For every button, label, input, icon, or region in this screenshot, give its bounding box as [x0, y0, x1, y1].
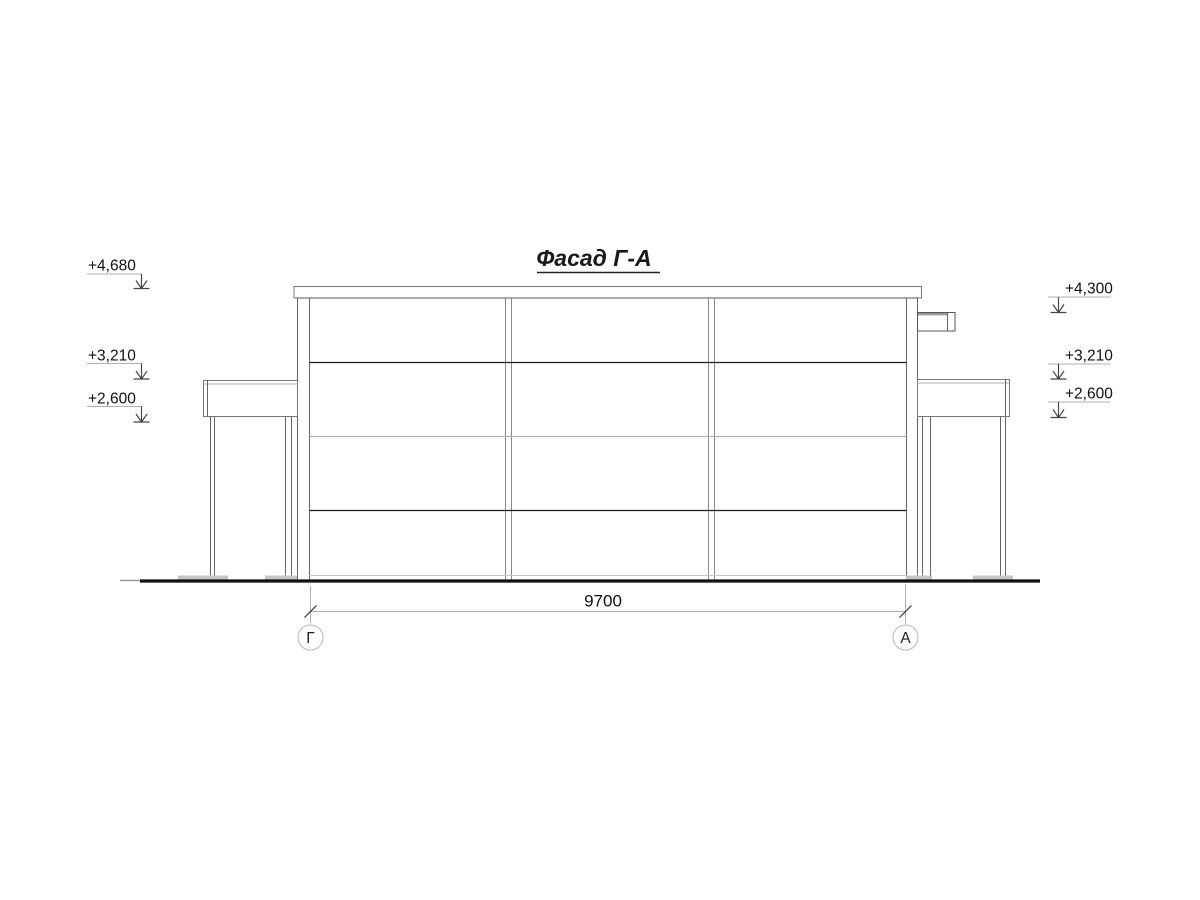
axis-label: Г: [306, 630, 315, 647]
elevation-mark: +2,600: [87, 391, 150, 423]
roof-protrusion: [918, 313, 956, 332]
elevation-mark: +4,300: [1048, 281, 1113, 313]
elevation-arrow-icon: [1051, 364, 1067, 379]
main-facade: [294, 287, 922, 581]
elevation-marks-right: +4,300 +3,210 +2,600: [1048, 281, 1113, 418]
roof-parapet: [294, 287, 922, 299]
elevation-arrow-icon: [134, 274, 150, 289]
left-canopy: [204, 381, 298, 580]
elevation-value: +2,600: [1065, 386, 1113, 403]
elevation-arrow-icon: [1051, 402, 1067, 418]
facade-elevation-drawing: Фасад Г-А: [0, 0, 1200, 900]
elevation-value: +4,300: [1065, 281, 1113, 298]
elevation-value: +2,600: [88, 391, 136, 408]
title-block: Фасад Г-А: [536, 245, 660, 273]
elevation-mark: +3,210: [1048, 348, 1113, 380]
elevation-value: +4,680: [88, 258, 136, 275]
elevation-arrow-icon: [1051, 297, 1067, 313]
plinth-right-2: [973, 576, 1013, 581]
axis-marker-left: Г: [298, 625, 323, 650]
axis-markers: Г А: [298, 625, 918, 650]
plinth-left-2: [265, 576, 297, 581]
right-canopy: [918, 380, 1010, 580]
right-canopy-roof: [918, 380, 1010, 417]
drawing-sheet: Фасад Г-А: [0, 0, 1200, 900]
elevation-mark: +3,210: [87, 348, 150, 380]
elevation-arrow-icon: [134, 407, 150, 423]
elevation-marks-left: +4,680 +3,210 +2,600: [87, 258, 150, 423]
elevation-mark: +2,600: [1048, 386, 1113, 418]
left-canopy-roof: [204, 381, 298, 417]
axis-label: А: [900, 630, 911, 647]
elevation-mark: +4,680: [87, 258, 150, 289]
elevation-value: +3,210: [88, 348, 136, 365]
axis-marker-right: А: [893, 625, 918, 650]
elevation-arrow-icon: [134, 364, 150, 380]
plinth-left-1: [178, 576, 228, 581]
dimension-line-group: 9700: [305, 584, 912, 624]
plinth-right-1: [906, 576, 932, 581]
drawing-title: Фасад Г-А: [536, 245, 651, 271]
dimension-value: 9700: [584, 592, 622, 611]
ground: [120, 576, 1040, 582]
elevation-value: +3,210: [1065, 348, 1113, 365]
